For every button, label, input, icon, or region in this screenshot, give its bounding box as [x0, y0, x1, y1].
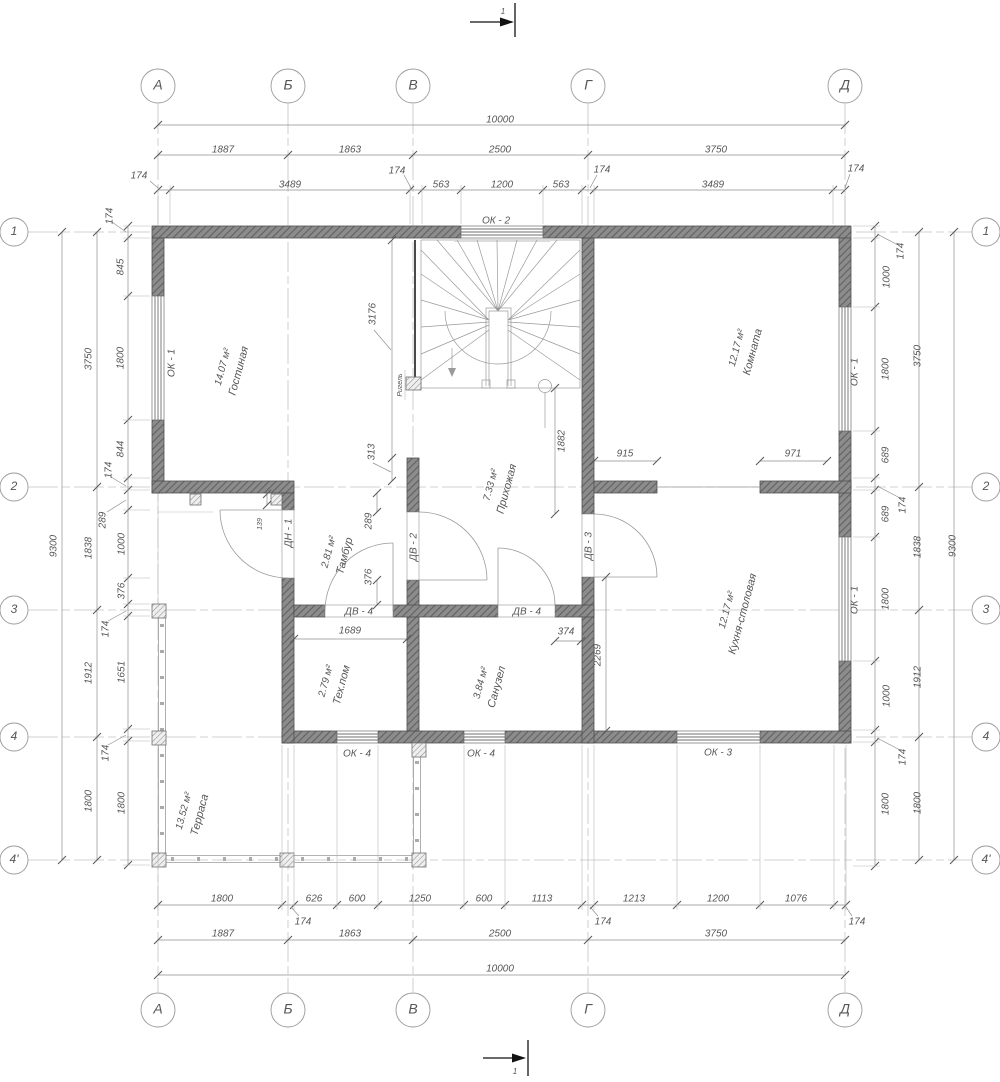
dim-label: 1912: [84, 661, 95, 684]
axis-bubble-label: Д: [838, 77, 850, 93]
dim-label: 174: [295, 917, 312, 928]
dim-label: 174: [101, 744, 112, 761]
opening-label: ОК - 1: [850, 358, 861, 386]
axis-bubble-label: 3: [983, 602, 990, 616]
dim-label: 1800: [881, 792, 892, 815]
dim-label: 2500: [488, 145, 512, 156]
axis-bubble-label: В: [408, 1001, 417, 1017]
dim-label: 1076: [785, 894, 808, 905]
opening-label: ДВ - 2: [409, 532, 420, 562]
dim-label: 10000: [486, 115, 514, 126]
opening-label: ДВ - 4: [344, 607, 374, 618]
opening-label: ОК - 4: [343, 749, 372, 760]
stair-walkline: [445, 311, 551, 364]
dim-label: 2269: [593, 643, 604, 667]
dim-label: 600: [349, 894, 366, 905]
dim-label: 1200: [491, 180, 514, 191]
dim-label: 3750: [705, 145, 728, 156]
staircase: [405, 240, 580, 428]
dim-label: 1800: [117, 791, 128, 814]
dim-label: 313: [367, 443, 378, 460]
dim-label: 174: [105, 207, 116, 224]
stair-start-symbol: [539, 380, 552, 393]
dim-label: 174: [131, 171, 148, 182]
dim-label: 1800: [881, 357, 892, 380]
dim-label: 376: [364, 568, 375, 585]
dim-label: 915: [617, 449, 634, 460]
dim-label: 174: [898, 748, 909, 765]
opening-label: ДН - 1: [284, 519, 295, 549]
axis-bubble-label: 2: [10, 479, 18, 493]
opening-label: ДВ - 4: [512, 607, 542, 618]
dim-label: 174: [898, 496, 909, 513]
dim-label: 289: [98, 511, 109, 529]
axis-bubble-label: 2: [982, 479, 990, 493]
dim-label: 3750: [84, 347, 95, 370]
dim-label: 1882: [557, 429, 568, 452]
dim-label: 376: [117, 582, 128, 599]
dim-label: 626: [306, 894, 323, 905]
dim-label: 1800: [881, 587, 892, 610]
dim-label: 563: [553, 180, 570, 191]
opening-label: ОК - 4: [467, 749, 496, 760]
axis-bubble-label: 1: [983, 224, 990, 238]
axis-bubble-label: А: [152, 1001, 162, 1017]
dim-label: 9300: [948, 534, 959, 557]
axis-bubble-label: 4: [983, 729, 990, 743]
axis-bubble-label: 1: [11, 224, 18, 238]
opening-label: ОК - 1: [850, 586, 861, 614]
dim-label: 1000: [117, 532, 128, 555]
section-mark-label: 1: [513, 1067, 517, 1076]
beam-label: Ригель: [397, 373, 404, 397]
opening-label: ОК - 1: [167, 349, 178, 377]
dim-label: 174: [896, 242, 907, 259]
dim-label: 3750: [705, 929, 728, 940]
dim-label: 374: [558, 627, 575, 638]
section-mark-label: 1: [501, 7, 505, 16]
dim-label: 1000: [882, 684, 893, 707]
dim-label: 10000: [486, 964, 514, 975]
dim-label: 1651: [117, 661, 128, 683]
dim-label: 1887: [212, 145, 235, 156]
dim-label: 1912: [913, 665, 924, 688]
dim-label: 1213: [623, 894, 646, 905]
dim-label: 3750: [913, 344, 924, 367]
dim-label: 174: [594, 165, 611, 176]
dim-label: 174: [849, 917, 866, 928]
dim-label: 563: [433, 180, 450, 191]
axis-bubble-label: 4': [10, 852, 20, 866]
axis-bubble-label: 3: [11, 602, 18, 616]
axis-bubble-label: Д: [838, 1001, 850, 1017]
dim-label: 139: [257, 518, 264, 530]
axis-bubble-label: В: [408, 77, 417, 93]
dim-label: 971: [785, 449, 802, 460]
dim-label: 1689: [339, 626, 362, 637]
dim-label: 2500: [488, 929, 512, 940]
dim-label: 600: [476, 894, 493, 905]
dimension-lines: [58, 121, 958, 979]
dim-label: 3489: [702, 180, 725, 191]
dim-label: 1863: [339, 929, 362, 940]
dim-label: 174: [595, 917, 612, 928]
dim-label: 1800: [913, 791, 924, 814]
axis-bubble-label: 4: [11, 729, 18, 743]
floor-plan-drawing: 1000018871863250037501743489174563120056…: [0, 0, 1000, 1082]
axis-bubble-label: А: [152, 77, 162, 93]
axis-bubble-label: 4': [982, 852, 992, 866]
axis-bubble-label: Б: [283, 77, 292, 93]
opening-label: ДВ - 3: [584, 531, 595, 561]
dim-label: 1887: [212, 929, 235, 940]
opening-label: ОК - 3: [704, 748, 733, 759]
floor-plan-page: 1000018871863250037501743489174563120056…: [0, 0, 1000, 1082]
dim-label: 174: [104, 461, 115, 478]
dim-label: 9300: [49, 534, 60, 557]
section-marks: [470, 3, 528, 1076]
dim-label: 689: [881, 505, 892, 522]
dim-label: 3489: [279, 180, 302, 191]
dim-label: 174: [848, 164, 865, 175]
dim-label: 844: [116, 440, 127, 457]
dim-label: 845: [116, 258, 127, 275]
dim-label: 1113: [532, 894, 553, 905]
dim-label: 3176: [368, 302, 379, 325]
dim-label: 1250: [409, 894, 432, 905]
dim-label: 689: [881, 446, 892, 463]
dim-label: 1800: [116, 346, 127, 369]
dim-label: 1838: [84, 536, 95, 559]
dim-label: 174: [101, 620, 112, 637]
opening-label: ОК - 2: [482, 216, 511, 227]
dim-label: 174: [389, 166, 406, 177]
axis-bubble-label: Б: [283, 1001, 292, 1017]
dim-label: 1838: [913, 535, 924, 558]
dim-label: 1200: [707, 894, 730, 905]
dim-label: 1863: [339, 145, 362, 156]
dim-label: 289: [364, 512, 375, 530]
dim-label: 1000: [882, 265, 893, 288]
dim-label: 1800: [211, 894, 234, 905]
dim-label: 1800: [84, 789, 95, 812]
stair-direction-arrow: [448, 368, 456, 377]
